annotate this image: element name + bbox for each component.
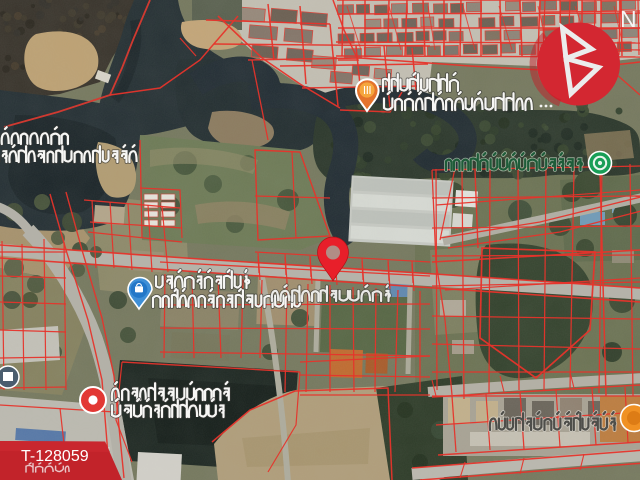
svg-text:N: N (620, 6, 637, 32)
